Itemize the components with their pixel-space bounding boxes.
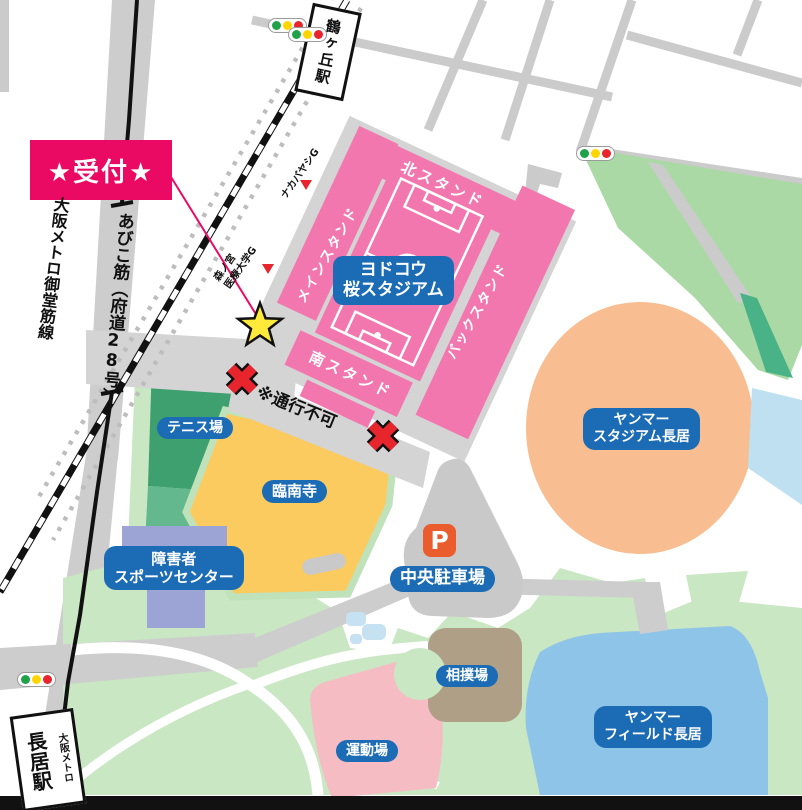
rinnanji-label: 臨南寺: [262, 480, 327, 503]
yanmar-field-label: ヤンマー フィールド長居: [594, 706, 712, 748]
green-patch-1: [686, 571, 748, 606]
road-edge-strip: [0, 0, 9, 92]
nagai-station-operator: 大阪メトロ: [53, 732, 75, 784]
traffic-signal-icon: [288, 27, 327, 42]
yanmar-stadium-label: ヤンマー スタジアム長居: [583, 408, 700, 450]
sumo-label: 相撲場: [436, 665, 498, 687]
yanmar-stadium-label-line2: スタジアム長居: [593, 429, 690, 446]
sports-center-label-line1: 障害者: [151, 550, 196, 568]
yodoko-stadium-label-line1: ヨドコウ: [360, 260, 427, 280]
parking-icon: P: [423, 524, 456, 557]
yanmar-field-label-line2: フィールド長居: [604, 727, 702, 744]
pond: [346, 612, 386, 644]
yodoko-stadium-label: ヨドコウ 桜スタジアム: [333, 256, 454, 305]
sports-center-label-line2: スポーツセンター: [114, 568, 234, 586]
yodoko-stadium-label-line2: 桜スタジアム: [343, 280, 444, 300]
tennis-label: テニス場: [157, 417, 233, 439]
nagai-station-sign: 長居駅 大阪メトロ: [10, 708, 87, 810]
yanmar-field-label-line1: ヤンマー: [625, 710, 681, 727]
nakabayashi-marker-icon: [300, 180, 312, 190]
abiko-road-label-suffix: 号）: [98, 370, 121, 406]
reception-label: ★受付★: [30, 140, 172, 200]
yanmar-stadium-label-line1: ヤンマー: [614, 412, 670, 429]
sports-ground-label: 運動場: [336, 740, 398, 762]
traffic-signal-icon: [17, 672, 56, 687]
morinomiya-marker-icon: [262, 264, 274, 274]
water-band-east: [748, 388, 802, 505]
traffic-signal-icon: [576, 146, 615, 161]
abiko-road-number: 28: [101, 330, 124, 372]
central-parking-label: 中央駐車場: [390, 566, 495, 592]
map-bottom-bar: [0, 796, 802, 810]
sports-center-label: 障害者 スポーツセンター: [104, 546, 244, 590]
nagai-station-name: 長居駅: [20, 730, 57, 793]
nagai-park-access-map: ★受付★ 鶴ヶ丘駅 長居駅 大阪メトロ 大阪メトロ御堂筋線 あびこ筋（府道28号…: [0, 0, 802, 810]
